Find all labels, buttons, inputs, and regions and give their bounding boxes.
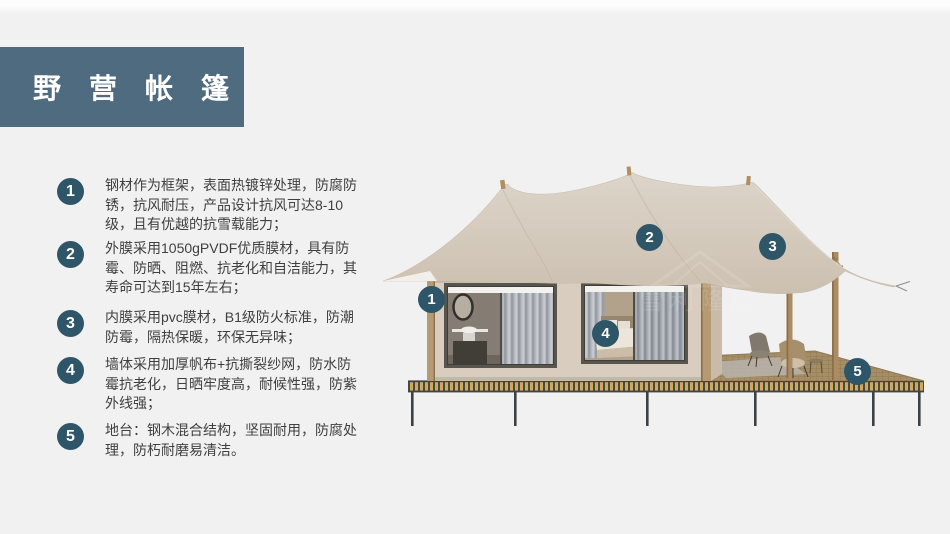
- watermark-text: 雪利隆居: [640, 288, 760, 315]
- window-bathroom: [444, 283, 557, 368]
- callout-badge-2: 2: [636, 224, 663, 251]
- mirror: [454, 295, 473, 320]
- curtain: [502, 293, 554, 365]
- pillow: [618, 321, 630, 329]
- vanity-cabinet: [453, 341, 487, 365]
- callout-badge-3: 3: [759, 233, 786, 260]
- slide: 野营帐篷 1 钢材作为框架，表面热镀锌处理，防腐防锈，抗风耐压，产品设计抗风可达…: [0, 0, 950, 534]
- guy-rope: [896, 282, 910, 292]
- platform-legs: [411, 390, 921, 426]
- platform-edge: [408, 380, 924, 392]
- tent-illustration: 雪利隆居: [0, 0, 950, 534]
- callout-badge-4: 4: [592, 320, 619, 347]
- callout-badge-1: 1: [418, 286, 445, 313]
- callout-badge-5: 5: [844, 358, 871, 385]
- sink: [461, 327, 477, 334]
- deck-surface: [703, 351, 924, 381]
